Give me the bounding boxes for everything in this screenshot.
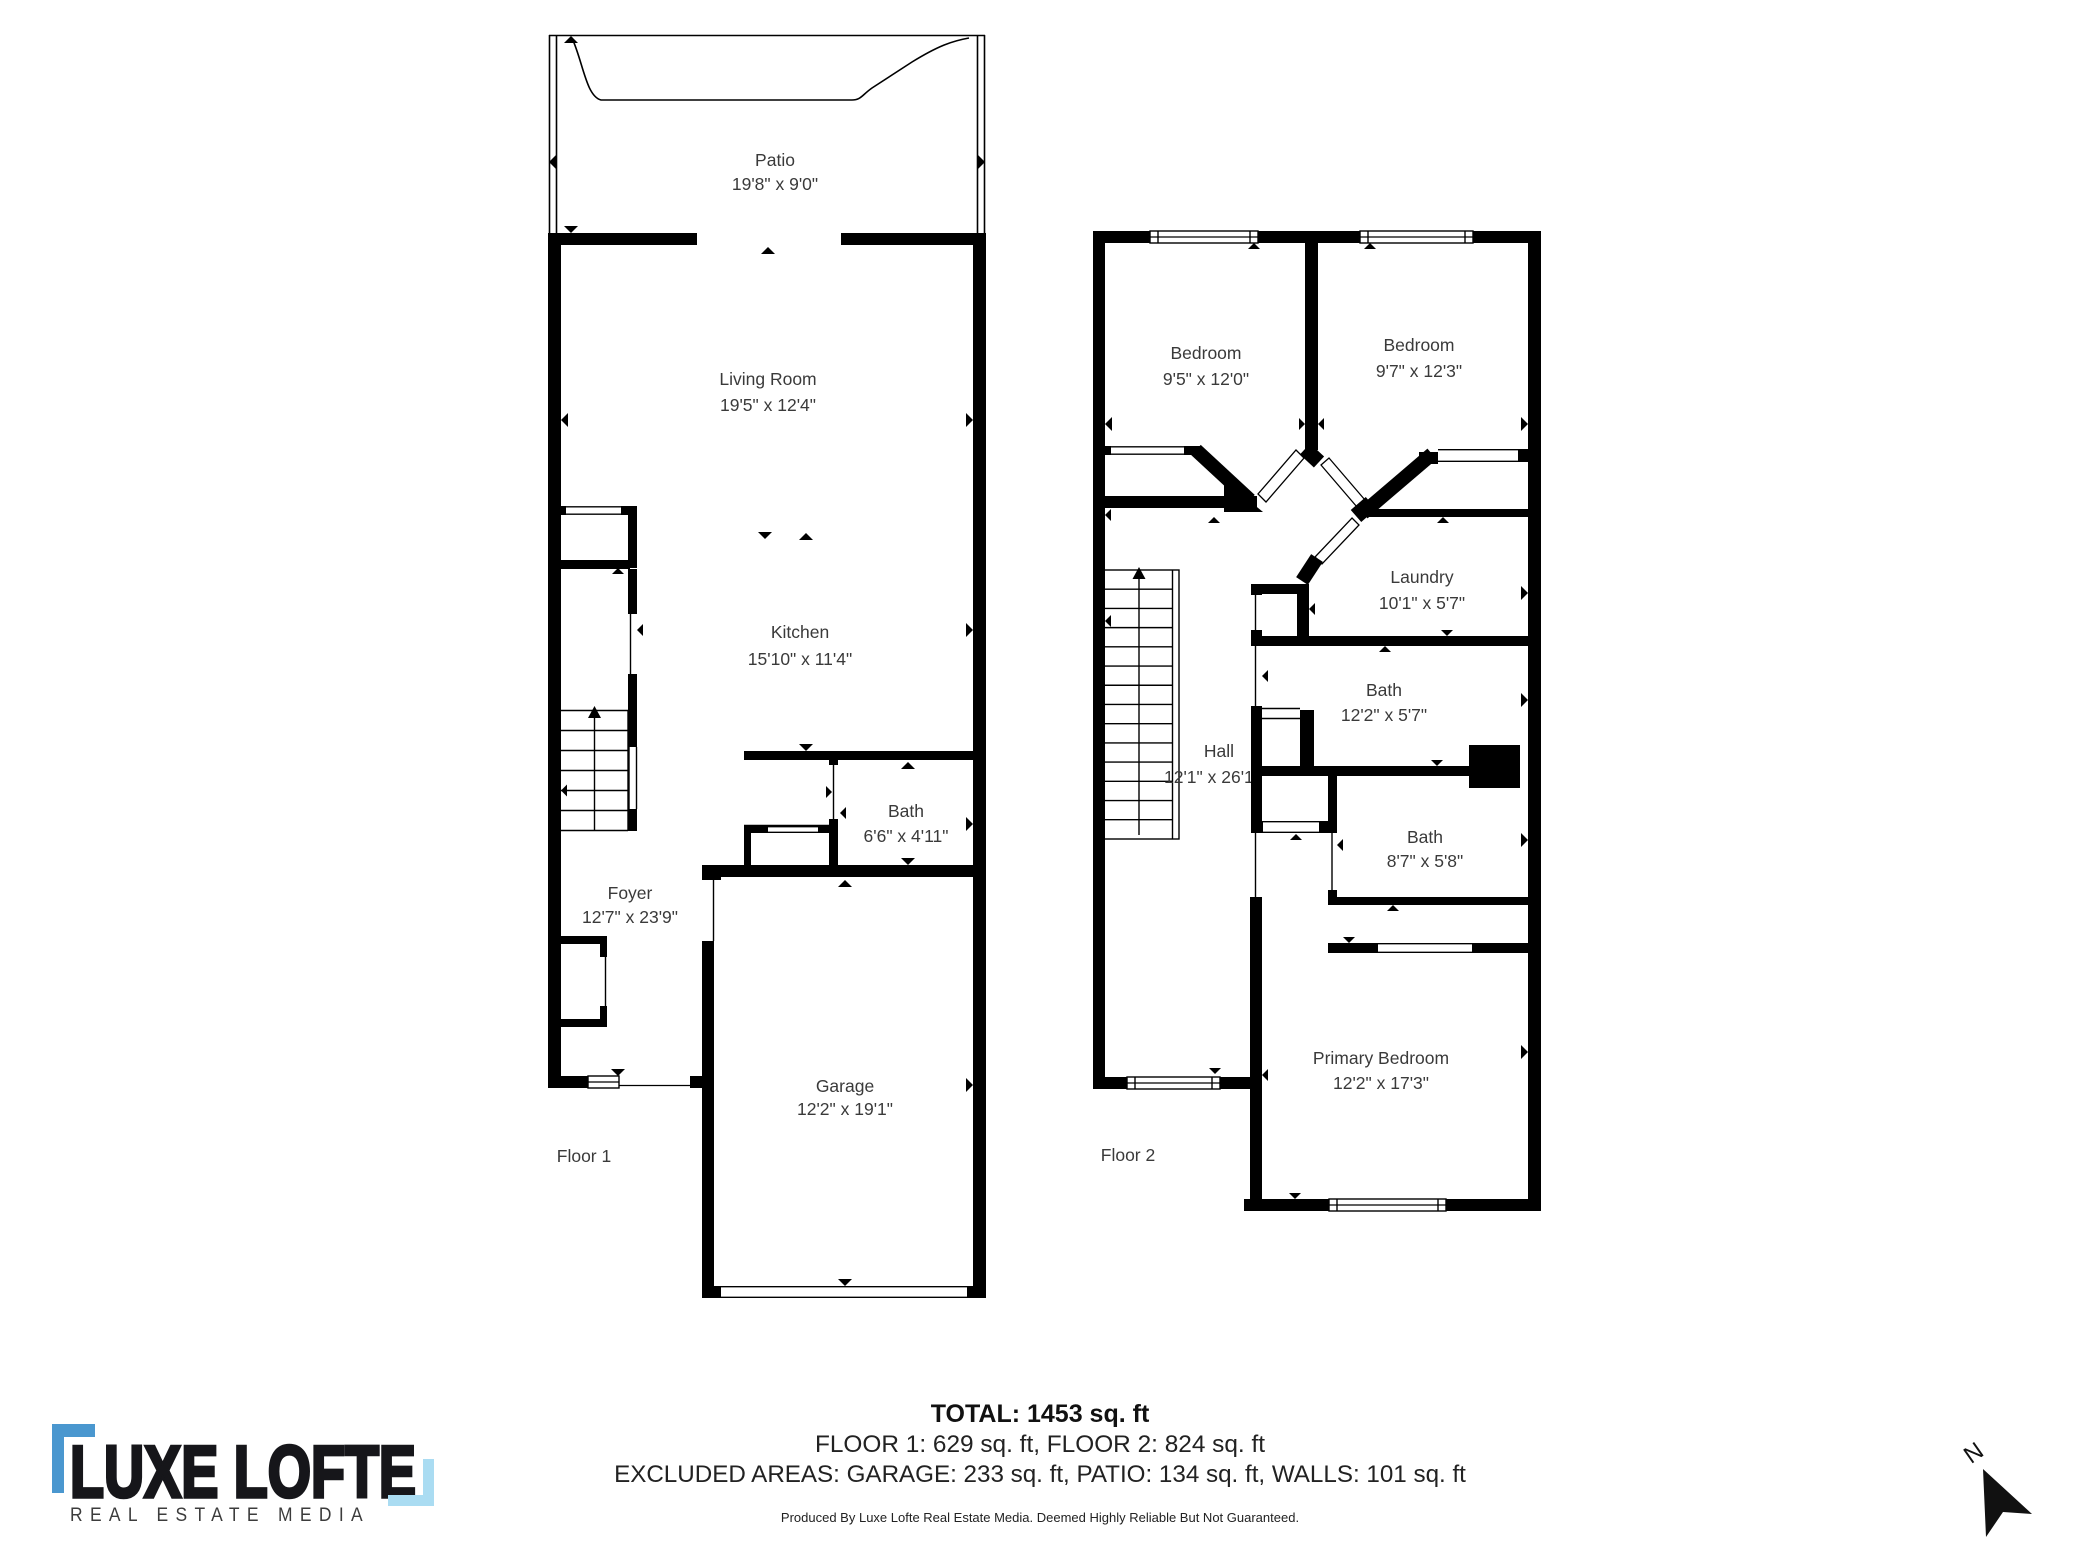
- svg-text:Floor 1: Floor 1: [557, 1146, 611, 1166]
- svg-text:Bedroom: Bedroom: [1170, 343, 1241, 363]
- svg-text:Foyer: Foyer: [608, 883, 653, 903]
- svg-text:Bath: Bath: [888, 801, 924, 821]
- svg-text:9'7" x 12'3": 9'7" x 12'3": [1376, 361, 1462, 381]
- svg-text:EXCLUDED AREAS: GARAGE: 233 sq: EXCLUDED AREAS: GARAGE: 233 sq. ft, PATI…: [614, 1461, 1466, 1488]
- svg-text:Hall: Hall: [1204, 741, 1234, 761]
- svg-text:Bedroom: Bedroom: [1383, 335, 1454, 355]
- svg-text:Patio: Patio: [755, 150, 795, 170]
- svg-text:6'6" x 4'11": 6'6" x 4'11": [864, 826, 949, 846]
- svg-text:Primary Bedroom: Primary Bedroom: [1313, 1048, 1449, 1068]
- svg-text:12'1" x 26'1": 12'1" x 26'1": [1164, 767, 1260, 787]
- svg-text:Kitchen: Kitchen: [771, 622, 829, 642]
- svg-text:Bath: Bath: [1407, 827, 1443, 847]
- svg-text:8'7" x 5'8": 8'7" x 5'8": [1387, 851, 1464, 871]
- svg-text:12'7" x 23'9": 12'7" x 23'9": [582, 907, 678, 927]
- svg-text:Produced By Luxe Lofte Real Es: Produced By Luxe Lofte Real Estate Media…: [781, 1510, 1299, 1525]
- svg-text:9'5" x 12'0": 9'5" x 12'0": [1163, 369, 1249, 389]
- svg-text:TOTAL: 1453 sq. ft: TOTAL: 1453 sq. ft: [931, 1400, 1150, 1428]
- svg-text:Garage: Garage: [816, 1076, 874, 1096]
- svg-text:15'10" x 11'4": 15'10" x 11'4": [748, 649, 852, 669]
- svg-text:Bath: Bath: [1366, 680, 1402, 700]
- svg-text:Living Room: Living Room: [719, 369, 816, 389]
- svg-text:10'1" x 5'7": 10'1" x 5'7": [1379, 593, 1465, 613]
- svg-text:LUXE LOFTE: LUXE LOFTE: [70, 1432, 416, 1513]
- svg-text:12'2" x 5'7": 12'2" x 5'7": [1341, 705, 1427, 725]
- svg-text:Floor 2: Floor 2: [1101, 1145, 1155, 1165]
- svg-text:FLOOR 1: 629 sq. ft, FLOOR 2:: FLOOR 1: 629 sq. ft, FLOOR 2: 824 sq. ft: [815, 1431, 1265, 1458]
- svg-text:19'5" x 12'4": 19'5" x 12'4": [720, 395, 816, 415]
- svg-text:19'8" x 9'0": 19'8" x 9'0": [732, 174, 818, 194]
- svg-text:REAL ESTATE MEDIA: REAL ESTATE MEDIA: [70, 1505, 370, 1526]
- svg-text:Laundry: Laundry: [1390, 567, 1453, 587]
- svg-text:12'2" x 17'3": 12'2" x 17'3": [1333, 1073, 1429, 1093]
- svg-text:12'2" x 19'1": 12'2" x 19'1": [797, 1099, 893, 1119]
